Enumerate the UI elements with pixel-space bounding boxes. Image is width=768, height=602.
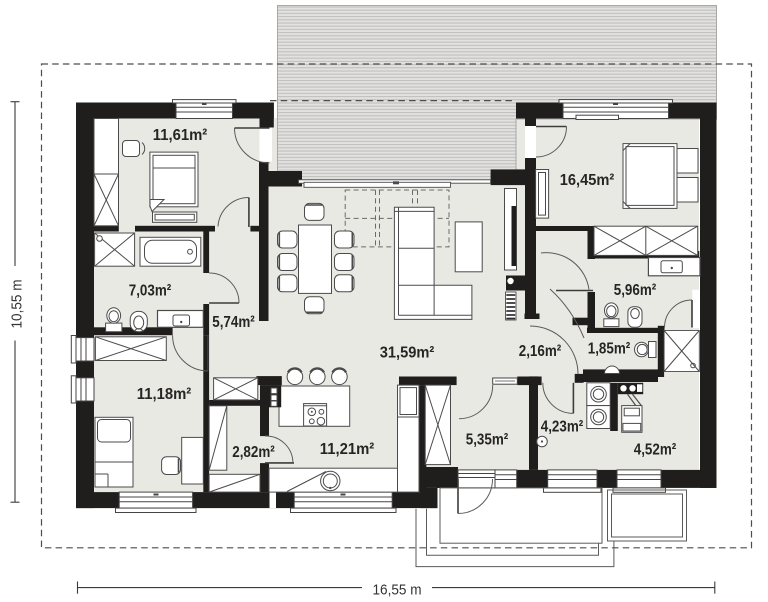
svg-text:5,96m²: 5,96m²	[614, 282, 657, 299]
svg-text:11,21m²: 11,21m²	[320, 441, 375, 458]
svg-text:16,55 m: 16,55 m	[373, 582, 422, 599]
svg-text:7,03m²: 7,03m²	[129, 283, 172, 300]
svg-text:10,55 m: 10,55 m	[9, 280, 26, 329]
svg-text:5,35m²: 5,35m²	[466, 432, 509, 449]
svg-text:2,82m²: 2,82m²	[232, 444, 275, 461]
svg-text:4,23m²: 4,23m²	[541, 419, 584, 436]
svg-text:16,45m²: 16,45m²	[560, 172, 615, 189]
svg-text:31,59m²: 31,59m²	[380, 345, 435, 362]
svg-text:11,18m²: 11,18m²	[137, 386, 192, 403]
svg-text:11,61m²: 11,61m²	[153, 127, 208, 144]
svg-text:1,85m²: 1,85m²	[588, 341, 631, 358]
svg-text:5,74m²: 5,74m²	[212, 314, 255, 331]
svg-text:2,16m²: 2,16m²	[519, 343, 562, 360]
svg-text:4,52m²: 4,52m²	[634, 442, 677, 459]
